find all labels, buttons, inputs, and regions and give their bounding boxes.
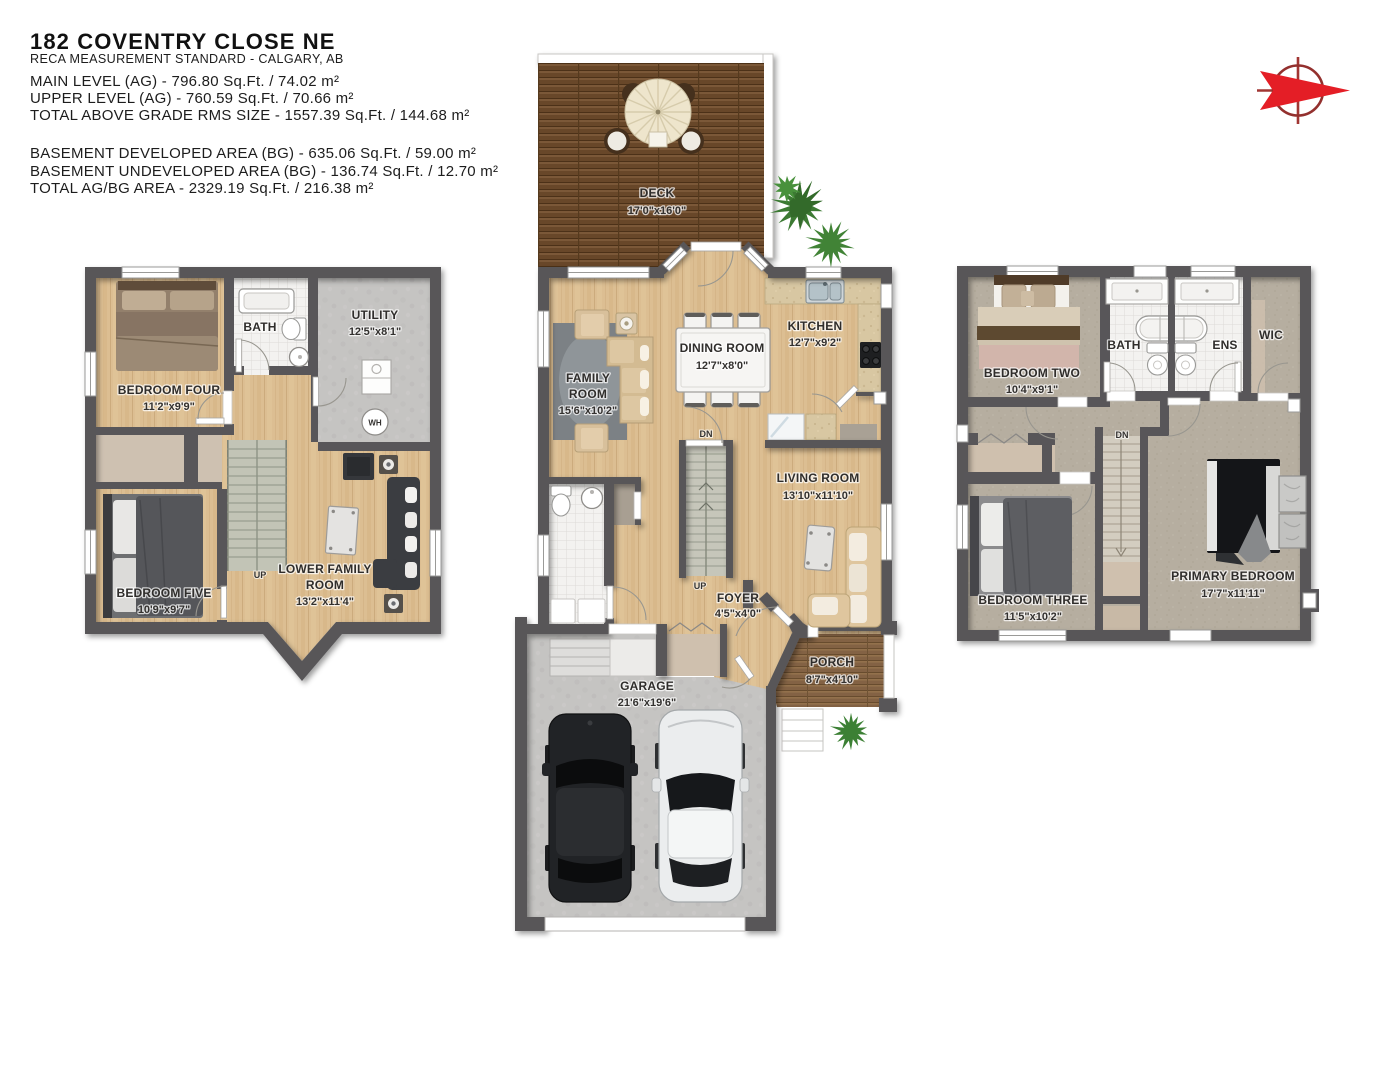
svg-text:PRIMARY BEDROOM: PRIMARY BEDROOM	[1171, 569, 1295, 583]
svg-text:FOYER: FOYER	[717, 591, 759, 605]
svg-text:WIC: WIC	[1259, 328, 1283, 342]
svg-text:4'5"x4'0": 4'5"x4'0"	[715, 608, 761, 620]
svg-text:10'9"x9'7": 10'9"x9'7"	[138, 604, 190, 616]
svg-text:BASEMENT DEVELOPED AREA (BG) -: BASEMENT DEVELOPED AREA (BG) - 635.06 Sq…	[30, 145, 476, 162]
svg-text:DECK: DECK	[640, 186, 675, 200]
svg-text:12'7"x8'0": 12'7"x8'0"	[696, 360, 748, 372]
svg-text:FAMILY: FAMILY	[566, 371, 610, 385]
svg-text:13'2"x11'4": 13'2"x11'4"	[296, 596, 354, 608]
svg-text:13'10"x11'10": 13'10"x11'10"	[783, 490, 853, 502]
svg-text:GARAGE: GARAGE	[620, 679, 674, 693]
svg-text:TOTAL AG/BG AREA - 2329.19 Sq.: TOTAL AG/BG AREA - 2329.19 Sq.Ft. / 216.…	[30, 180, 374, 197]
svg-text:KITCHEN: KITCHEN	[788, 319, 843, 333]
svg-text:11'2"x9'9": 11'2"x9'9"	[143, 401, 195, 413]
svg-text:BEDROOM THREE: BEDROOM THREE	[978, 593, 1087, 607]
svg-text:LOWER FAMILY: LOWER FAMILY	[278, 562, 371, 576]
svg-text:UP: UP	[254, 570, 267, 580]
svg-text:17'7"x11'11": 17'7"x11'11"	[1201, 588, 1264, 600]
svg-text:BEDROOM TWO: BEDROOM TWO	[984, 366, 1080, 380]
svg-text:MAIN LEVEL (AG) - 796.80 Sq.Ft: MAIN LEVEL (AG) - 796.80 Sq.Ft. / 74.02 …	[30, 73, 339, 90]
svg-text:PORCH: PORCH	[810, 655, 854, 669]
svg-text:LIVING ROOM: LIVING ROOM	[777, 471, 860, 485]
svg-text:UPPER LEVEL (AG) - 760.59 Sq.F: UPPER LEVEL (AG) - 760.59 Sq.Ft. / 70.66…	[30, 90, 354, 107]
svg-text:UTILITY: UTILITY	[352, 308, 399, 322]
svg-text:DN: DN	[700, 429, 713, 439]
svg-text:ROOM: ROOM	[569, 387, 607, 401]
svg-text:BEDROOM FOUR: BEDROOM FOUR	[118, 383, 221, 397]
svg-text:RECA MEASUREMENT STANDARD - CA: RECA MEASUREMENT STANDARD - CALGARY, AB	[30, 52, 344, 66]
svg-text:12'7"x9'2": 12'7"x9'2"	[789, 337, 841, 349]
svg-text:21'6"x19'6": 21'6"x19'6"	[618, 697, 677, 709]
svg-text:10'4"x9'1": 10'4"x9'1"	[1006, 384, 1058, 396]
svg-text:11'5"x10'2": 11'5"x10'2"	[1004, 611, 1062, 623]
svg-text:ROOM: ROOM	[306, 578, 344, 592]
svg-text:WH: WH	[368, 419, 382, 428]
svg-text:12'5"x8'1": 12'5"x8'1"	[349, 326, 401, 338]
svg-text:DINING ROOM: DINING ROOM	[680, 341, 765, 355]
svg-text:17'0"x16'0": 17'0"x16'0"	[628, 205, 687, 217]
svg-text:BEDROOM FIVE: BEDROOM FIVE	[116, 586, 211, 600]
svg-text:TOTAL ABOVE GRADE RMS SIZE - 1: TOTAL ABOVE GRADE RMS SIZE - 1557.39 Sq.…	[30, 107, 469, 124]
svg-text:UP: UP	[694, 581, 707, 591]
svg-text:BASEMENT UNDEVELOPED AREA (BG): BASEMENT UNDEVELOPED AREA (BG) - 136.74 …	[30, 163, 498, 180]
svg-text:BATH: BATH	[1107, 338, 1140, 352]
svg-text:8'7"x4'10": 8'7"x4'10"	[806, 674, 858, 686]
svg-text:182 COVENTRY CLOSE NE: 182 COVENTRY CLOSE NE	[30, 29, 336, 54]
svg-text:15'6"x10'2": 15'6"x10'2"	[559, 405, 618, 417]
svg-text:DN: DN	[1116, 430, 1129, 440]
svg-text:BATH: BATH	[243, 320, 276, 334]
svg-text:ENS: ENS	[1212, 338, 1237, 352]
